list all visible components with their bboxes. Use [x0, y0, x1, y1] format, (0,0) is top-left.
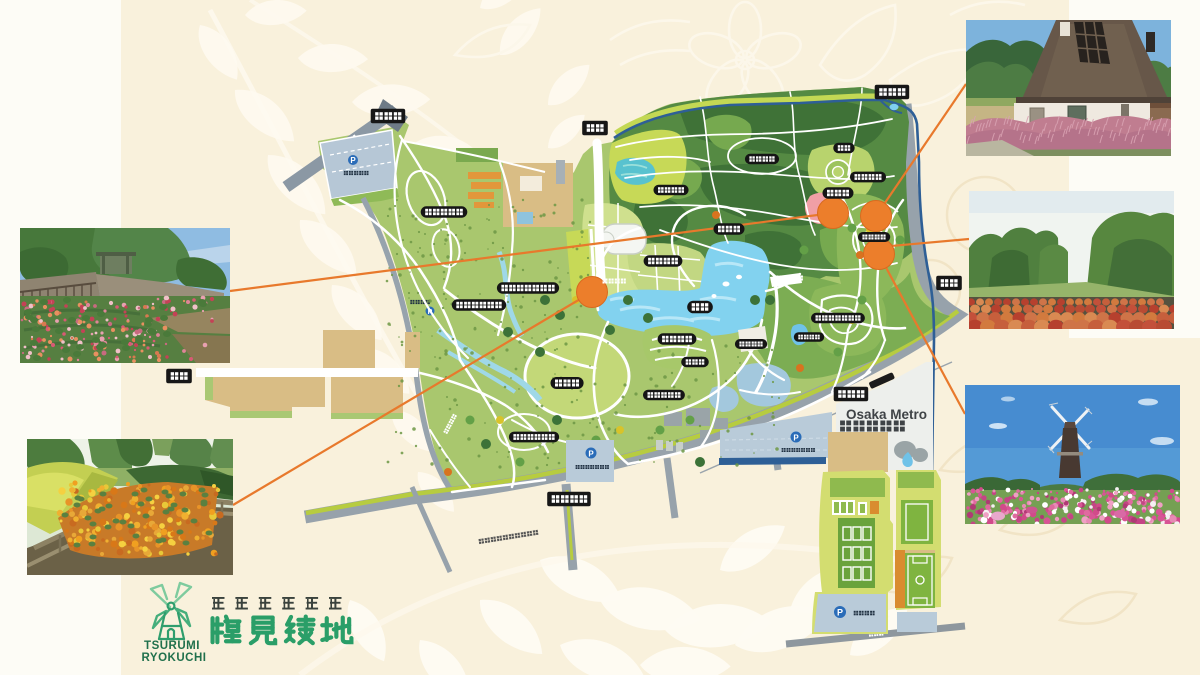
- svg-text:P: P: [588, 449, 594, 458]
- svg-text:Osaka Metro: Osaka Metro: [846, 407, 927, 422]
- svg-text:P: P: [350, 156, 356, 165]
- svg-text:P: P: [837, 608, 843, 618]
- svg-text:P: P: [793, 433, 799, 442]
- svg-text:RYOKUCHI: RYOKUCHI: [142, 652, 207, 664]
- svg-text:TSURUMI: TSURUMI: [144, 640, 200, 652]
